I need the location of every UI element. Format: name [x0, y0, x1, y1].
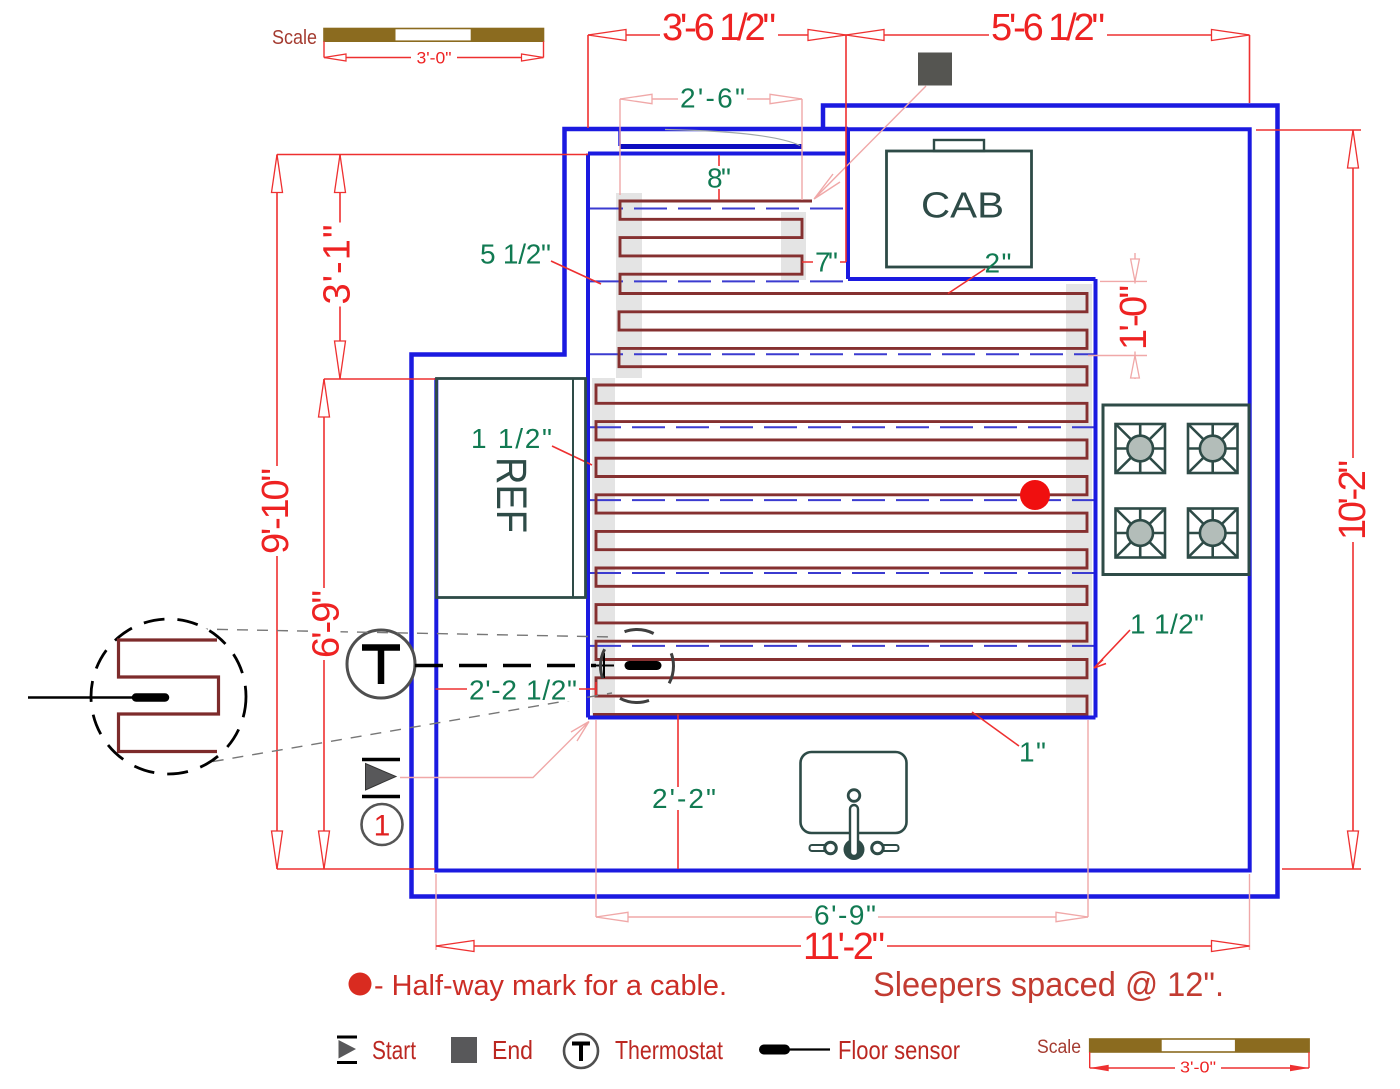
svg-text:5'-6 1/2": 5'-6 1/2"	[991, 7, 1105, 49]
svg-text:7": 7"	[815, 247, 838, 278]
svg-text:3'-0": 3'-0"	[417, 49, 452, 68]
svg-text:10'-2": 10'-2"	[1332, 460, 1374, 540]
svg-text:2": 2"	[985, 248, 1012, 279]
svg-text:11'-2": 11'-2"	[803, 926, 885, 968]
svg-text:2'-2": 2'-2"	[652, 783, 716, 814]
svg-text:Scale: Scale	[1037, 1037, 1081, 1058]
svg-text:Floor sensor: Floor sensor	[838, 1035, 960, 1065]
svg-text:6'-9": 6'-9"	[306, 590, 348, 658]
svg-text:2'-6": 2'-6"	[680, 83, 745, 114]
svg-text:Scale: Scale	[272, 27, 317, 49]
svg-text:1'-0": 1'-0"	[1113, 285, 1155, 350]
svg-text:1": 1"	[1019, 737, 1046, 768]
svg-text:2'-2 1/2": 2'-2 1/2"	[469, 675, 577, 706]
svg-text:5 1/2": 5 1/2"	[480, 239, 551, 270]
svg-text:- Half-way mark for a cable.: - Half-way mark for a cable.	[374, 970, 727, 1002]
svg-text:3'-0": 3'-0"	[1180, 1060, 1216, 1077]
svg-text:8": 8"	[707, 163, 731, 194]
svg-text:3'-6 1/2": 3'-6 1/2"	[662, 7, 776, 49]
svg-text:1 1/2": 1 1/2"	[471, 423, 552, 454]
svg-text:3'-1": 3'-1"	[317, 225, 359, 305]
svg-text:REF: REF	[487, 457, 535, 533]
svg-text:9'-10": 9'-10"	[255, 468, 297, 554]
svg-text:Thermostat: Thermostat	[615, 1035, 724, 1065]
svg-text:6'-9": 6'-9"	[814, 900, 876, 931]
svg-text:Start: Start	[372, 1035, 417, 1065]
svg-text:1: 1	[374, 810, 391, 843]
svg-text:1 1/2": 1 1/2"	[1130, 609, 1204, 640]
svg-text:Sleepers spaced @ 12".: Sleepers spaced @ 12".	[873, 966, 1224, 1004]
svg-text:CAB: CAB	[921, 185, 1004, 226]
svg-text:End: End	[492, 1035, 533, 1065]
